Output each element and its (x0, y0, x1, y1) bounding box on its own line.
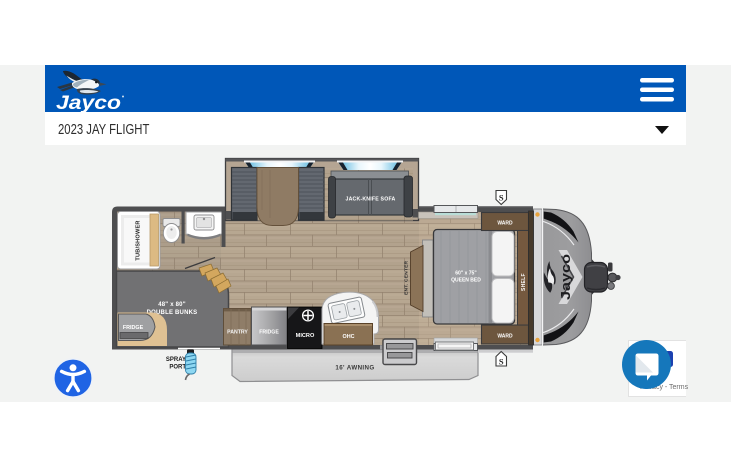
svg-text:16' AWNING: 16' AWNING (335, 365, 374, 372)
svg-text:S: S (499, 193, 504, 203)
svg-text:MICRO: MICRO (296, 333, 315, 339)
svg-text:QUEEN BED: QUEEN BED (451, 278, 481, 284)
svg-text:FRIDGE: FRIDGE (259, 330, 279, 336)
svg-text:PORT: PORT (169, 365, 186, 371)
svg-text:JACK-KNIFE SOFA: JACK-KNIFE SOFA (346, 197, 396, 203)
svg-text:OHC: OHC (343, 334, 355, 340)
svg-text:ENT. CENTER: ENT. CENTER (404, 260, 410, 295)
svg-text:WARD: WARD (497, 221, 513, 227)
svg-text:SHELF: SHELF (521, 273, 527, 291)
svg-text:TUB/SHOWER: TUB/SHOWER (136, 220, 142, 260)
svg-text:S: S (499, 357, 504, 367)
svg-text:60" x 75": 60" x 75" (455, 271, 477, 277)
svg-text:FRIDGE: FRIDGE (123, 325, 144, 331)
svg-text:PANTRY: PANTRY (227, 330, 248, 336)
svg-text:SPRAY: SPRAY (166, 357, 186, 363)
svg-text:WARD: WARD (497, 334, 513, 340)
svg-text:Jayco: Jayco (559, 254, 573, 300)
svg-text:48" x 80": 48" x 80" (158, 302, 186, 308)
svg-text:Jayco: Jayco (56, 93, 121, 114)
